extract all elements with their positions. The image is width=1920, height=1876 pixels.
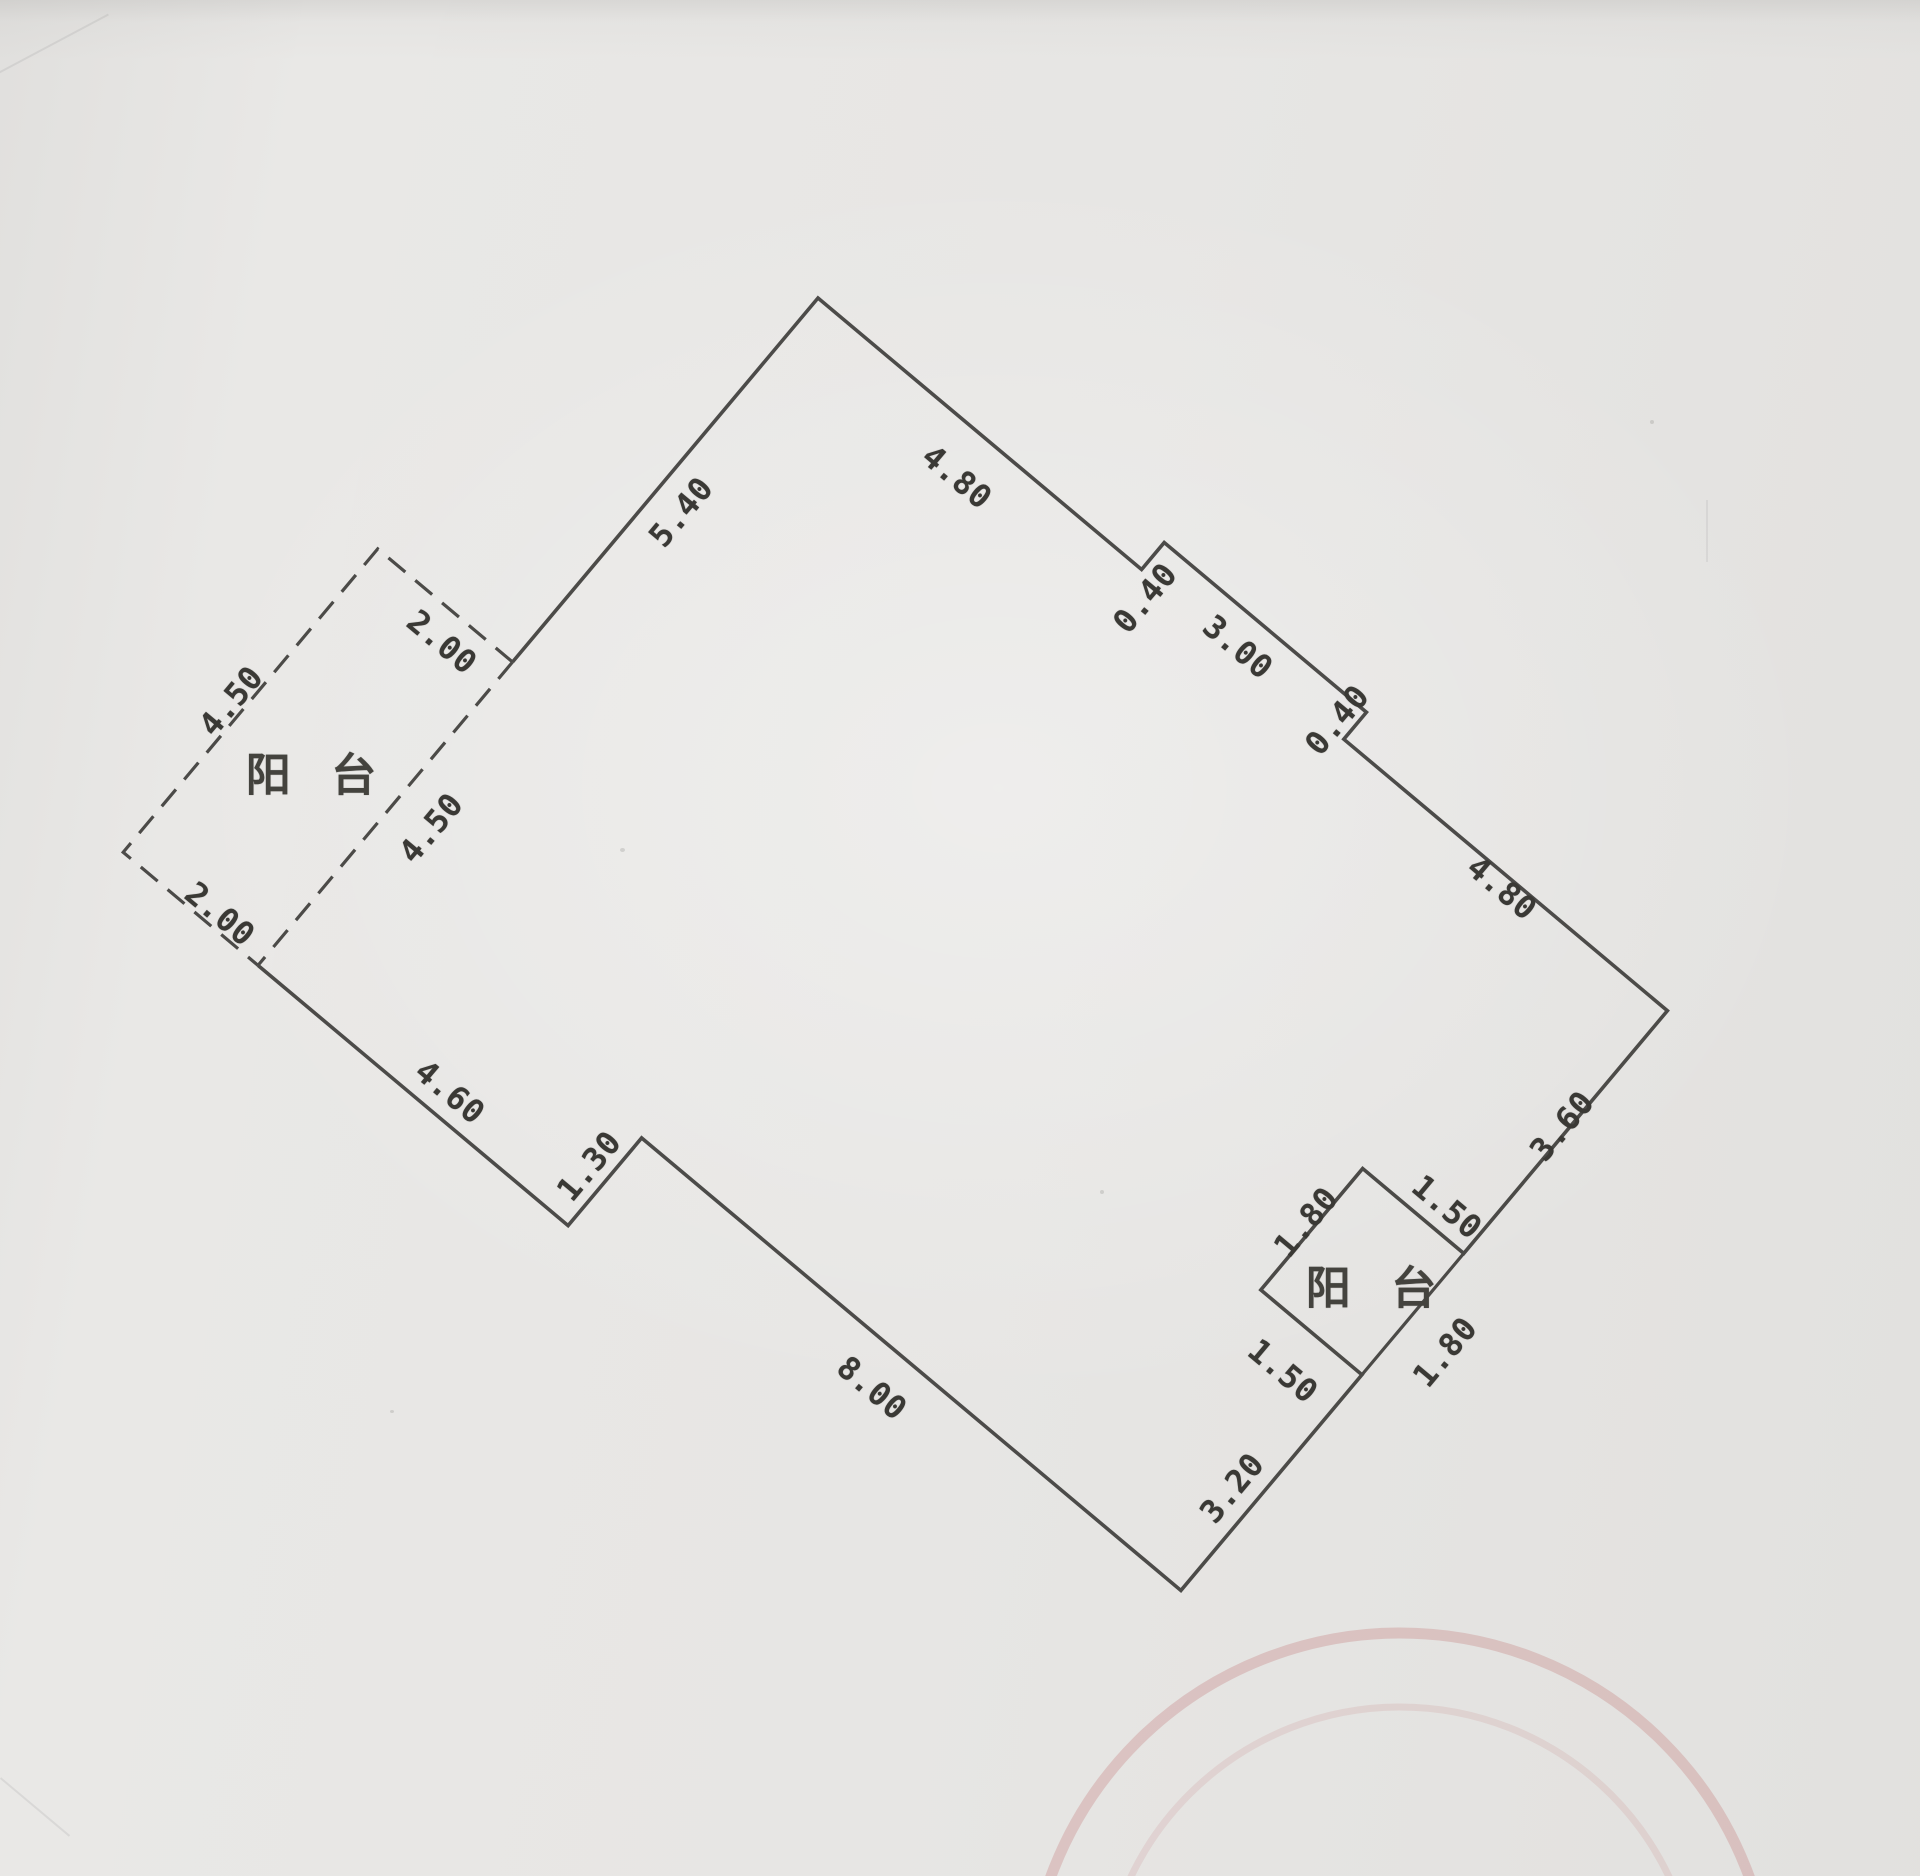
- floorplan-drawing: [0, 0, 1920, 1876]
- left-balcony-opening: [258, 662, 513, 965]
- stamp-inner-circle: [1102, 1707, 1698, 1876]
- scanned-floorplan-paper: 4.800.403.000.404.805.402.004.504.502.00…: [0, 0, 1920, 1876]
- wall-outline: [258, 271, 1690, 1678]
- floorplan-outline-group: [123, 158, 1690, 1678]
- right-balcony-railing: [1362, 1253, 1464, 1374]
- left-balcony-outline: [123, 549, 512, 965]
- stamp-seal: [1028, 1633, 1772, 1876]
- stamp-outer-circle: [1028, 1633, 1772, 1876]
